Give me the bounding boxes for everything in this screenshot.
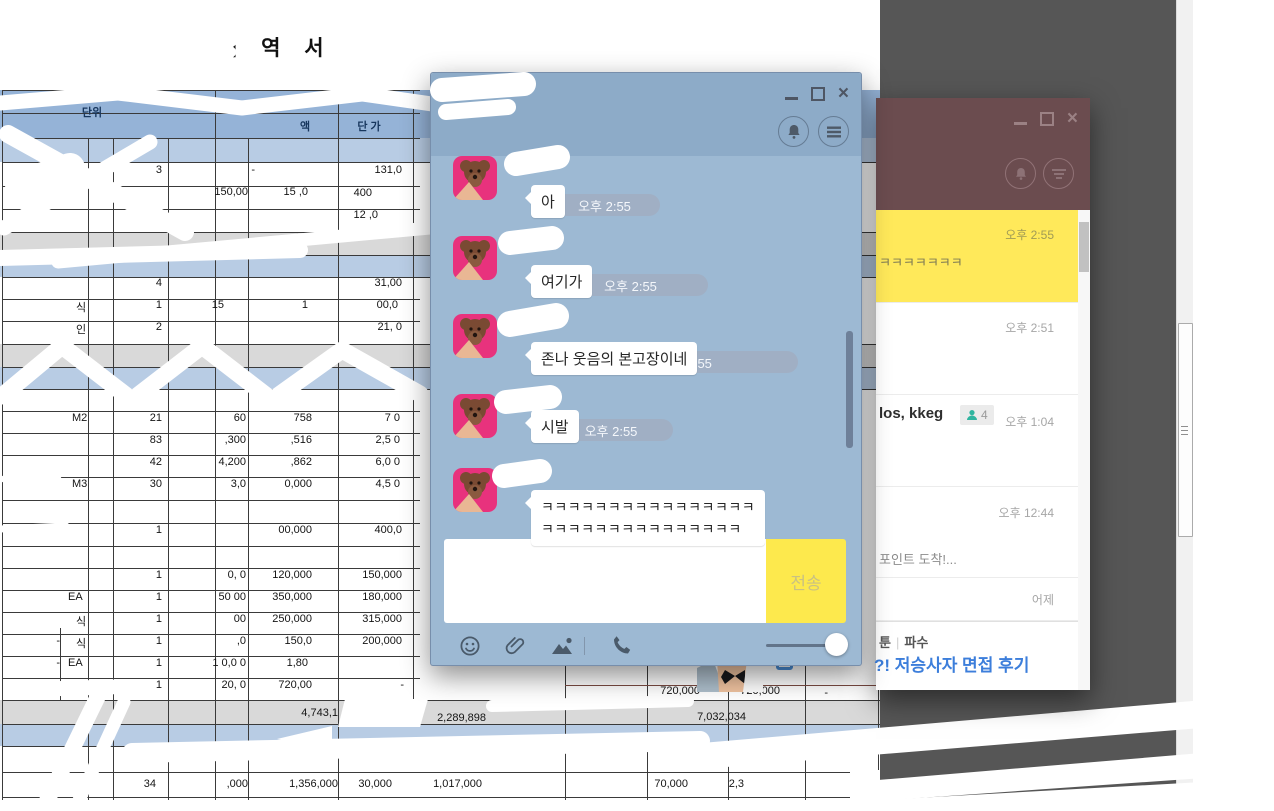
message-input-area: 전송 xyxy=(444,539,846,623)
member-count: 4 xyxy=(981,408,988,422)
spreadsheet-title: 내 역 서 xyxy=(218,32,333,62)
sheet-cell: 1 xyxy=(118,524,162,536)
sheet-cell: 1 xyxy=(270,299,308,311)
sheet-cell: 0,000 xyxy=(258,478,312,490)
sheet-cell: 34 xyxy=(112,778,156,790)
sheet-cell: 3,0 xyxy=(192,478,246,490)
sheet-cell: ,516 xyxy=(258,434,312,446)
sheet-cell: 50 00 xyxy=(192,591,246,603)
sheet-cell: ,862 xyxy=(258,456,312,468)
sheet-cell: 720,00 xyxy=(256,679,312,691)
chat-list-scrollbar[interactable] xyxy=(1078,210,1090,690)
chat-list-item[interactable]: 어제 xyxy=(876,578,1078,621)
scrollbar-grip xyxy=(1181,426,1188,427)
sheet-cell: 2,5 0 xyxy=(348,434,400,446)
message-bubble: 시발 xyxy=(531,410,579,443)
avatar[interactable] xyxy=(453,156,497,200)
sheet-cell: 2,289,898 xyxy=(426,712,486,724)
system-scrollbar-thumb[interactable] xyxy=(1178,323,1193,537)
chat-item-time: 오후 2:55 xyxy=(1005,226,1054,243)
chat-list-item-selected[interactable]: 오후 2:55 ㅋㅋㅋㅋㅋㅋㅋ xyxy=(876,210,1078,303)
paperclip-icon xyxy=(505,635,527,657)
sheet-cell: 150,000 xyxy=(346,569,402,581)
avatar[interactable] xyxy=(453,394,497,438)
sheet-cell: 4,743,1 xyxy=(278,707,338,719)
sheet-cell: 1 0,0 0 xyxy=(182,657,246,669)
sheet-cell: 21, 0 xyxy=(350,321,402,333)
sheet-cell: 2,3 xyxy=(714,778,744,790)
hamburger-menu-icon xyxy=(826,126,842,138)
message-input[interactable] xyxy=(444,539,766,623)
sheet-cell: EA xyxy=(68,591,94,603)
chat-list-scrollbar-thumb[interactable] xyxy=(1079,222,1089,272)
message-bubble: 여기가 xyxy=(531,265,592,298)
sheet-cell: 21 xyxy=(118,412,162,424)
sheet-cell: 180,000 xyxy=(346,591,402,603)
sheet-cell: 식 xyxy=(76,679,94,695)
friends-window-controls: × xyxy=(1014,111,1078,127)
ad-headline-link[interactable]: ?! 저승사자 면접 후기 xyxy=(874,651,1029,676)
sheet-cell: - xyxy=(48,635,60,647)
sheet-cell: 15 ,0 xyxy=(258,186,308,198)
sheet-cell: 1 xyxy=(118,569,162,581)
phone-icon xyxy=(610,635,632,657)
sheet-cell: 720,000 xyxy=(642,685,700,697)
avatar[interactable] xyxy=(453,314,497,358)
sheet-cell: 1 xyxy=(118,591,162,603)
sheet-cell: 30,000 xyxy=(350,778,392,790)
menu-button[interactable] xyxy=(818,116,849,147)
toolbar-divider xyxy=(584,637,585,655)
sheet-cell: 200,000 xyxy=(346,635,402,647)
ad-category-right: 파수 xyxy=(904,635,928,650)
send-button[interactable]: 전송 xyxy=(766,539,846,623)
minimize-button[interactable] xyxy=(1014,122,1027,125)
message-line: ㅋㅋㅋㅋㅋㅋㅋㅋㅋㅋㅋㅋㅋㅋㅋㅋ xyxy=(541,496,755,518)
scrollbar-grip xyxy=(1181,430,1188,431)
ad-category-left: 툰 xyxy=(879,635,891,650)
minimize-button[interactable] xyxy=(785,97,798,100)
sheet-cell: 350,000 xyxy=(256,591,312,603)
group-member-badge: 4 xyxy=(960,405,994,425)
sheet-cell: 1 xyxy=(118,635,162,647)
send-image-button[interactable] xyxy=(547,631,577,661)
chat-item-preview: ㅋㅋㅋㅋㅋㅋㅋ xyxy=(879,252,963,271)
chat-window-controls: × xyxy=(785,86,849,102)
chat-item-time: 오후 1:04 xyxy=(1005,413,1054,430)
sheet-cell: 식 xyxy=(76,299,94,315)
sheet-cell: M2 xyxy=(72,412,98,424)
sheet-cell: 150,00 xyxy=(276,232,328,244)
sheet-row-band xyxy=(0,724,880,746)
bell-icon xyxy=(785,123,803,141)
sheet-cell: 31,00 xyxy=(352,277,402,289)
sheet-cell: 120,000 xyxy=(256,569,312,581)
message-line: ㅋㅋㅋㅋㅋㅋㅋㅋㅋㅋㅋㅋㅋㅋㅋ xyxy=(541,518,755,540)
sheet-cell: 단 가 xyxy=(344,118,394,134)
sheet-cell: 단위 xyxy=(70,104,114,120)
scrollbar-grip xyxy=(1181,434,1188,435)
sheet-cell: 150,0 xyxy=(256,635,312,647)
sheet-cell: 6,0 0 xyxy=(348,456,400,468)
sheet-cell: 0, 0 xyxy=(192,569,246,581)
sheet-cell: 2 xyxy=(118,321,162,333)
sheet-cell: 4,200 xyxy=(192,456,246,468)
person-icon xyxy=(966,409,978,421)
ad-category-line: 툰|파수 xyxy=(879,632,928,651)
timestamp-text: 오후 2:55 xyxy=(604,276,657,295)
sheet-cell: 12 ,0 xyxy=(328,209,378,221)
emoticon-button[interactable] xyxy=(455,631,485,661)
sheet-cell: 1,017,000 xyxy=(422,778,482,790)
attach-file-button[interactable] xyxy=(501,631,531,661)
filter-icon xyxy=(1051,168,1067,180)
sheet-cell: 1,80 xyxy=(256,657,308,669)
sheet-cell: 1 xyxy=(118,613,162,625)
close-button[interactable]: × xyxy=(838,87,849,101)
opacity-slider-knob[interactable] xyxy=(825,633,848,656)
sheet-cell: EA xyxy=(68,657,94,669)
maximize-button[interactable] xyxy=(1040,112,1054,126)
system-scrollbar[interactable] xyxy=(1176,0,1193,811)
sheet-cell: ,000 xyxy=(196,778,248,790)
notification-bell-button[interactable] xyxy=(1005,158,1036,189)
sheet-cell: 7 0 xyxy=(348,412,400,424)
image-icon xyxy=(550,636,574,656)
sheet-cell: 노 무 xyxy=(382,93,432,109)
chat-item-time: 오후 2:51 xyxy=(1005,319,1054,336)
bell-icon xyxy=(1013,166,1029,182)
friends-window-titlebar: × xyxy=(876,98,1090,210)
sheet-cell: 758 xyxy=(258,412,312,424)
sheet-cell: 42 xyxy=(118,456,162,468)
sheet-cell: ,0 xyxy=(192,635,246,647)
sheet-cell: 83 xyxy=(118,434,162,446)
chat-scrollbar-thumb[interactable] xyxy=(846,331,853,448)
sheet-cell: 4 xyxy=(118,277,162,289)
sheet-cell: 4,5 0 xyxy=(348,478,400,490)
ad-category-separator: | xyxy=(891,635,904,650)
sheet-cell: 식 xyxy=(76,613,94,629)
sheet-cell: 20, 0 xyxy=(192,679,246,691)
avatar[interactable] xyxy=(453,236,497,280)
filter-menu-button[interactable] xyxy=(1043,158,1074,189)
avatar[interactable] xyxy=(453,468,497,512)
desktop: 내 역 서 단위노 무액단 가3-131,0150,0015 ,040012 ,… xyxy=(0,0,1274,811)
sheet-cell: 00 xyxy=(192,613,246,625)
sheet-cell: 7,032,034 xyxy=(686,711,746,723)
sheet-cell: 1,356,000 xyxy=(278,778,338,790)
ad-banner: 툰|파수 ?! 저승사자 면접 후기 xyxy=(876,621,1078,691)
timestamp-text: 오후 2:55 xyxy=(578,196,631,215)
sheet-cell: 315,000 xyxy=(346,613,402,625)
sheet-cell: - xyxy=(380,679,404,691)
chat-item-time: 어제 xyxy=(1032,591,1054,608)
sheet-cell: 1 xyxy=(118,657,162,669)
timestamp-text: 오후 2:55 xyxy=(585,421,638,440)
sheet-cell: - xyxy=(225,164,255,176)
sheet-cell: 250,000 xyxy=(256,613,312,625)
kakaotalk-chat-window: × xyxy=(430,72,862,666)
sheet-cell: 30 xyxy=(118,478,162,490)
message-bubble: ㅋㅋㅋㅋㅋㅋㅋㅋㅋㅋㅋㅋㅋㅋㅋㅋ ㅋㅋㅋㅋㅋㅋㅋㅋㅋㅋㅋㅋㅋㅋㅋ xyxy=(531,490,765,546)
sheet-cell: 15 xyxy=(178,299,224,311)
sheet-cell: M3 xyxy=(72,478,98,490)
chat-item-name: los, kkeg xyxy=(879,405,943,422)
sheet-cell: 인 xyxy=(76,321,94,337)
message-bubble: 아 xyxy=(531,185,565,218)
kakaotalk-main-window: × 오후 2:55 ㅋㅋㅋㅋㅋㅋㅋ 오후 2:51 xyxy=(876,98,1090,690)
chat-toolbar xyxy=(431,629,861,665)
sheet-cell: 3 xyxy=(118,164,162,176)
chat-list-item[interactable]: 오후 12:44 포인트 도착!... xyxy=(876,487,1078,578)
chat-list-item[interactable]: 오후 2:51 xyxy=(876,303,1078,395)
poodle-avatar-image xyxy=(453,468,497,512)
poodle-avatar-image xyxy=(453,236,497,280)
sheet-cell: 식 xyxy=(76,635,94,651)
sheet-cell: 00,0 xyxy=(348,299,398,311)
poodle-avatar-image xyxy=(453,394,497,438)
poodle-avatar-image xyxy=(453,314,497,358)
voice-call-button[interactable] xyxy=(606,631,636,661)
sheet-cell: 액 xyxy=(292,118,318,134)
chat-list-item[interactable]: los, kkeg 4 오후 1:04 xyxy=(876,395,1078,487)
smiley-icon xyxy=(459,635,481,657)
sheet-cell: - xyxy=(48,657,60,669)
message-timestamp: 오후 2:55 xyxy=(549,194,660,216)
chat-item-time: 오후 12:44 xyxy=(999,504,1054,521)
sheet-cell: 150,00 xyxy=(192,186,248,198)
sheet-cell: 1 xyxy=(118,679,162,691)
message-bubble: 존나 웃음의 본고장이네 xyxy=(531,342,697,375)
sheet-cell: 00,000 xyxy=(256,524,312,536)
sheet-cell: 60 xyxy=(192,412,246,424)
notification-bell-button[interactable] xyxy=(778,116,809,147)
maximize-button[interactable] xyxy=(811,87,825,101)
sheet-cell: 400 xyxy=(330,187,372,199)
sheet-cell: 70,000 xyxy=(644,778,688,790)
sheet-cell: ,300 xyxy=(192,434,246,446)
poodle-avatar-image xyxy=(453,156,497,200)
chat-item-preview: 포인트 도착!... xyxy=(879,549,957,568)
sheet-cell: - xyxy=(48,679,60,691)
sheet-cell: - xyxy=(808,687,828,699)
sheet-cell: 1 xyxy=(118,299,162,311)
sheet-cell: 400,0 xyxy=(346,524,402,536)
close-button[interactable]: × xyxy=(1067,112,1078,126)
sheet-cell: 131,0 xyxy=(348,164,402,176)
